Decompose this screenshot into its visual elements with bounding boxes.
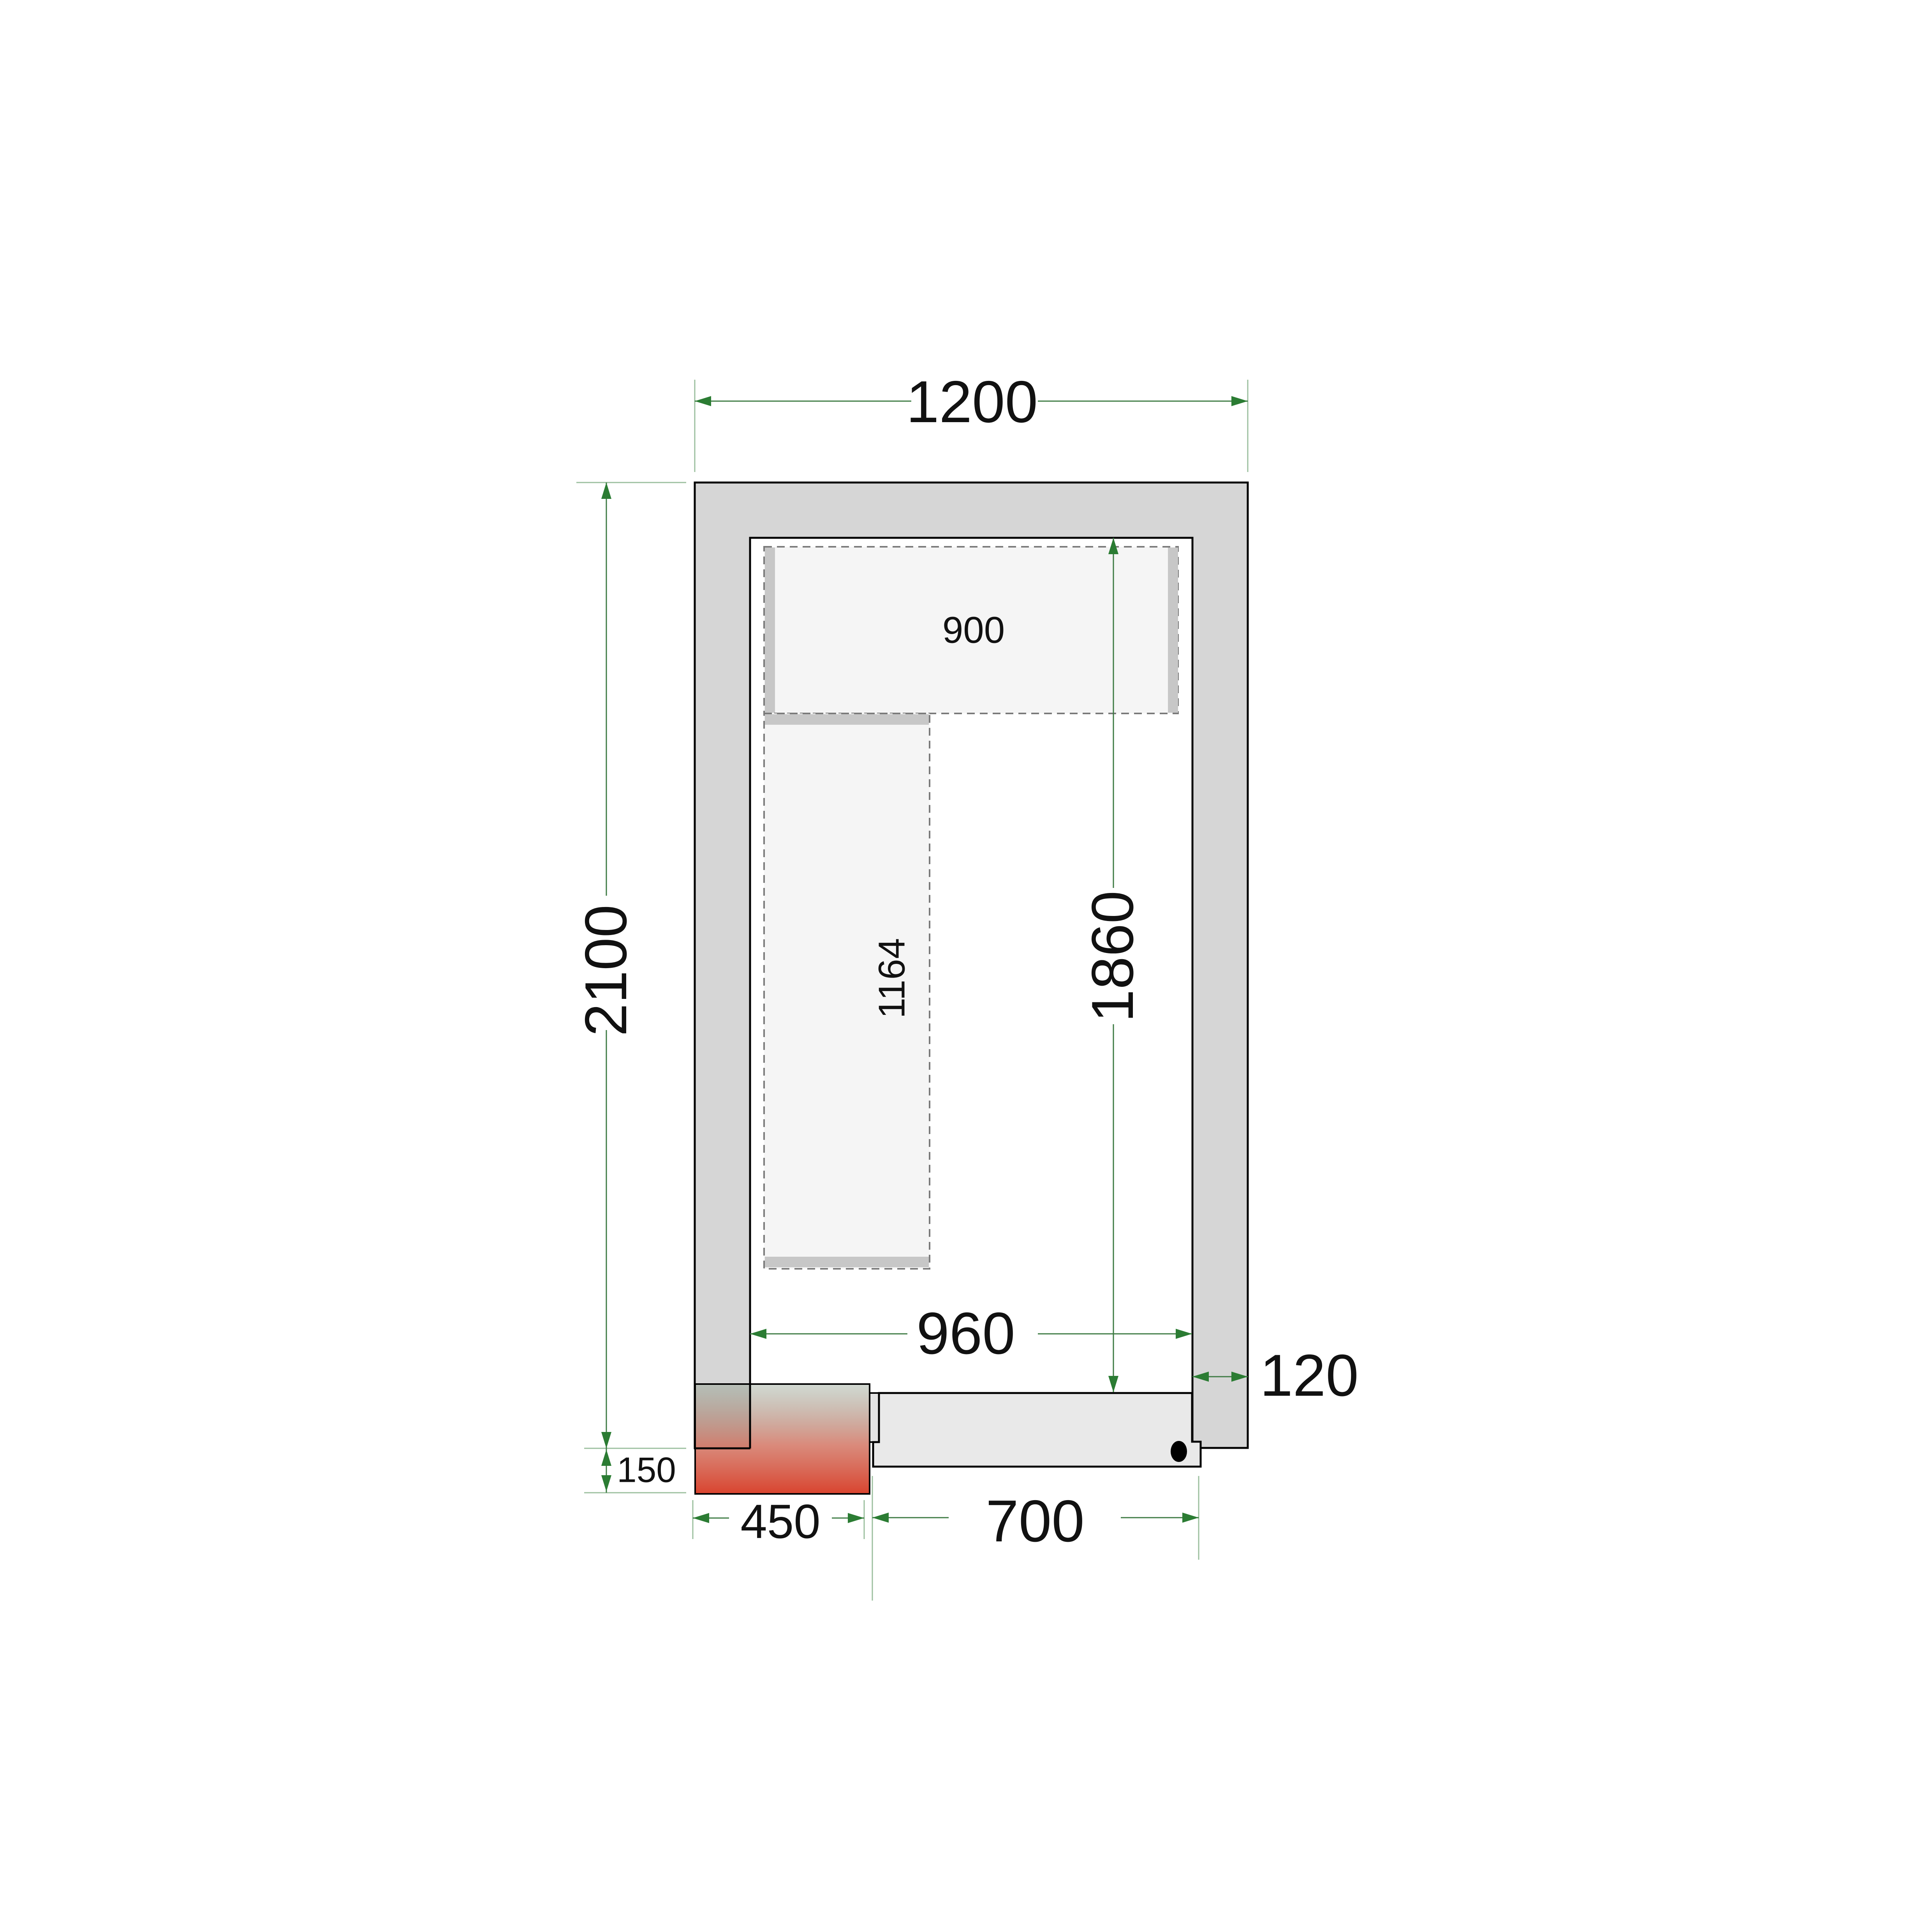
arrow-door-left — [872, 1513, 889, 1523]
top-shelf-support-right — [1168, 548, 1178, 713]
left-shelf: 1164 — [764, 713, 930, 1269]
arrow-inner-depth-down — [1108, 1376, 1118, 1392]
left-shelf-support-top — [765, 714, 929, 725]
label-door-width: 700 — [986, 1488, 1085, 1554]
top-shelf-support-left — [765, 548, 775, 713]
top-shelf: 900 — [764, 547, 1178, 713]
arrow-outer-depth-down — [601, 1432, 611, 1448]
arrow-outer-depth-up — [601, 483, 611, 499]
door-handle-dot — [1171, 1441, 1187, 1462]
label-outer-width: 1200 — [906, 369, 1038, 435]
label-unit-width: 450 — [740, 1495, 820, 1549]
arrow-outer-width-right — [1231, 396, 1248, 406]
arrow-unit-protrusion-down — [601, 1475, 611, 1492]
floor-plan-drawing: 900 1164 — [0, 0, 1932, 1932]
arrow-inner-width-right — [1176, 1329, 1192, 1339]
arrow-unit-right — [848, 1513, 864, 1523]
top-shelf-label: 900 — [942, 609, 1005, 651]
label-inner-depth: 1860 — [1080, 891, 1146, 1022]
left-shelf-support-bottom — [765, 1257, 929, 1267]
arrow-unit-protrusion-up — [601, 1449, 611, 1466]
label-outer-depth: 2100 — [573, 905, 639, 1036]
label-wall-thickness: 120 — [1260, 1342, 1359, 1409]
arrow-inner-width-left — [750, 1329, 766, 1339]
arrow-outer-width-left — [695, 396, 711, 406]
cooling-unit — [695, 1384, 870, 1494]
door-jamb-strip — [870, 1393, 879, 1442]
arrow-door-right — [1182, 1513, 1199, 1523]
label-inner-width: 960 — [916, 1300, 1015, 1367]
door-leaf — [873, 1393, 1201, 1467]
left-shelf-label: 1164 — [871, 938, 913, 1018]
arrow-unit-left — [693, 1513, 709, 1523]
label-unit-protrusion: 150 — [617, 1451, 676, 1490]
